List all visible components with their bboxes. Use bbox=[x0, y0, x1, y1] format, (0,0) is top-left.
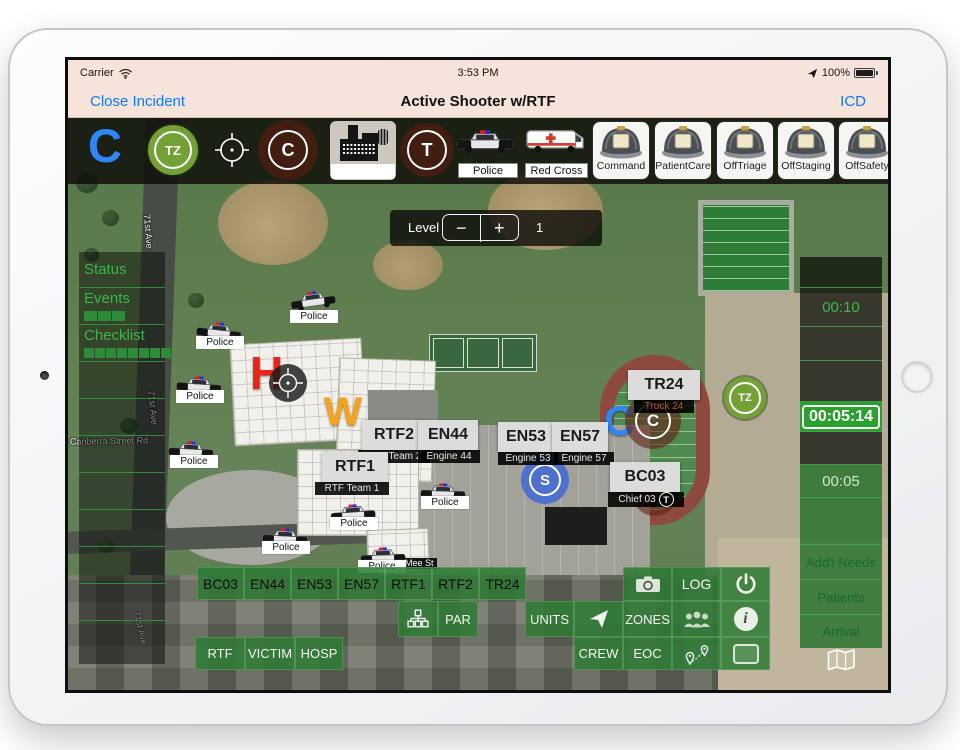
victim-button[interactable]: VICTIM bbox=[245, 637, 295, 670]
unit-marker-tr24[interactable]: TR24 bbox=[628, 370, 700, 400]
level-control: Level − + 1 bbox=[390, 210, 602, 246]
left-panel-row[interactable] bbox=[79, 547, 165, 584]
active-timer-row[interactable]: 00:05:14 bbox=[800, 402, 882, 432]
building-icon bbox=[334, 123, 392, 163]
map-baseball-field bbox=[373, 240, 443, 290]
police-marker-label: Police bbox=[176, 390, 224, 403]
left-panel-row[interactable] bbox=[79, 621, 165, 664]
camera-icon bbox=[635, 575, 661, 593]
command-tool[interactable]: C bbox=[88, 122, 122, 169]
unit-marker-en53[interactable]: EN53 bbox=[498, 422, 554, 452]
checklist-progress bbox=[84, 345, 165, 363]
police-marker-label: Police bbox=[196, 336, 244, 349]
role-button-offstaging[interactable]: OffStaging bbox=[777, 121, 835, 180]
unit-button-bc03[interactable]: BC03 bbox=[197, 567, 244, 600]
page-title: Active Shooter w/RTF bbox=[68, 93, 888, 110]
locate-button[interactable] bbox=[574, 601, 623, 637]
right-panel-row[interactable] bbox=[800, 361, 882, 402]
unit-button-rtf2[interactable]: RTF2 bbox=[432, 567, 479, 600]
unit-marker-en44[interactable]: EN44 bbox=[418, 420, 478, 450]
helmet-icon bbox=[660, 125, 706, 159]
active-timer: 00:05:14 bbox=[802, 405, 880, 429]
eoc-button[interactable]: EOC bbox=[623, 637, 672, 670]
role-button-command[interactable]: Command bbox=[592, 121, 650, 180]
people-icon bbox=[682, 610, 712, 629]
navigation-arrow-icon bbox=[588, 608, 610, 630]
police-marker-label: Police bbox=[290, 310, 338, 323]
org-chart-button[interactable] bbox=[398, 601, 438, 637]
route-pins-button[interactable] bbox=[672, 637, 721, 670]
unit-button-en57[interactable]: EN57 bbox=[338, 567, 385, 600]
folded-map-icon bbox=[826, 648, 856, 672]
icd-button[interactable]: ICD bbox=[840, 93, 866, 110]
unit-button-en44[interactable]: EN44 bbox=[244, 567, 291, 600]
level-label: Level bbox=[408, 220, 439, 235]
events-progress bbox=[84, 308, 165, 326]
screen: Carrier 3:53 PM 100% Close Incident Acti… bbox=[68, 60, 888, 690]
triage-tool[interactable]: T bbox=[400, 123, 454, 177]
left-panel-row[interactable] bbox=[79, 510, 165, 547]
icon-toolbar: C TZ C T bbox=[68, 118, 888, 184]
right-panel-row[interactable] bbox=[800, 327, 882, 361]
par-button[interactable]: PAR bbox=[438, 601, 478, 637]
unit-marker-sub: Engine 57 bbox=[554, 452, 614, 465]
left-panel: Status Events Checklist bbox=[79, 252, 165, 664]
map-book-button[interactable] bbox=[826, 648, 856, 672]
helmet-icon bbox=[722, 125, 768, 159]
unit-button-rtf1[interactable]: RTF1 bbox=[385, 567, 432, 600]
timer-row[interactable]: 00:10 bbox=[800, 288, 882, 327]
map-baseball-field bbox=[218, 180, 328, 265]
timer-small-row[interactable]: 00:05 bbox=[800, 465, 882, 498]
addl-needs-row[interactable]: Add'l Needs bbox=[800, 545, 882, 580]
map-dark-building bbox=[545, 507, 607, 545]
helmet-icon bbox=[783, 125, 829, 159]
checklist-row[interactable]: Checklist bbox=[79, 327, 165, 362]
camera-button[interactable] bbox=[623, 567, 672, 601]
crosshair-tool[interactable] bbox=[212, 130, 252, 170]
police-tool-label: Police bbox=[458, 163, 518, 178]
unit-button-en53[interactable]: EN53 bbox=[291, 567, 338, 600]
role-button-offsafety[interactable]: OffSafety bbox=[838, 121, 888, 180]
events-row[interactable]: Events bbox=[79, 290, 165, 325]
role-button-offtriage[interactable]: OffTriage bbox=[716, 121, 774, 180]
home-button[interactable] bbox=[901, 361, 933, 393]
right-panel-row[interactable] bbox=[800, 432, 882, 465]
org-chart-icon bbox=[407, 609, 429, 629]
patients-row[interactable]: Patients bbox=[800, 580, 882, 615]
unit-marker-sub: Chief 03 T bbox=[608, 492, 684, 507]
left-panel-row[interactable] bbox=[79, 584, 165, 621]
role-button-patientcare[interactable]: PatientCare bbox=[654, 121, 712, 180]
treatment-zone-tool[interactable]: TZ bbox=[148, 125, 198, 175]
left-panel-row[interactable] bbox=[79, 362, 165, 399]
people-button[interactable] bbox=[672, 601, 721, 637]
unit-marker-sub: Truck 24 bbox=[634, 400, 694, 413]
tablet-button[interactable] bbox=[721, 637, 770, 670]
right-panel-row[interactable] bbox=[800, 257, 882, 288]
level-plus-button[interactable]: + bbox=[481, 215, 519, 242]
cold-zone-tool[interactable]: C bbox=[258, 120, 318, 180]
map-tree bbox=[188, 293, 204, 308]
warm-zone-marker[interactable]: W bbox=[324, 392, 362, 432]
police-marker-label: Police bbox=[421, 496, 469, 509]
unit-marker-bc03[interactable]: BC03 bbox=[610, 462, 680, 492]
treatment-zone-marker[interactable]: TZ bbox=[724, 377, 766, 419]
rtf-button[interactable]: RTF bbox=[195, 637, 245, 670]
ipad-bezel: Carrier 3:53 PM 100% Close Incident Acti… bbox=[8, 28, 948, 726]
power-icon bbox=[734, 572, 758, 596]
zones-button[interactable]: ZONES bbox=[623, 601, 672, 637]
map-tennis-courts bbox=[430, 335, 536, 371]
police-marker-label: Police bbox=[262, 541, 310, 554]
power-button[interactable] bbox=[721, 567, 770, 601]
unit-marker-sub: RTF Team 1 bbox=[315, 482, 389, 495]
police-marker-label: Police bbox=[170, 455, 218, 468]
left-panel-row[interactable] bbox=[79, 473, 165, 510]
police-marker-label: Police bbox=[330, 517, 378, 530]
status-row[interactable]: Status bbox=[79, 252, 165, 288]
info-icon: i bbox=[734, 607, 758, 631]
helmet-icon bbox=[598, 125, 644, 159]
front-camera bbox=[40, 371, 49, 380]
right-panel: 00:10 00:05:14 00:05 Add'l Needs Patient… bbox=[800, 257, 882, 648]
triage-mini-badge: T bbox=[659, 492, 674, 507]
hosp-button[interactable]: HOSP bbox=[295, 637, 343, 670]
clock: 3:53 PM bbox=[68, 67, 888, 79]
info-button[interactable]: i bbox=[721, 601, 770, 637]
building-tool[interactable] bbox=[330, 121, 396, 180]
map-tree bbox=[102, 210, 119, 226]
log-button[interactable]: LOG bbox=[672, 567, 721, 601]
police-tool[interactable] bbox=[456, 128, 514, 154]
map-stadium bbox=[698, 200, 794, 296]
map-pins-icon bbox=[683, 643, 711, 665]
helmet-icon bbox=[844, 125, 888, 159]
unit-marker-sub: Engine 53 bbox=[498, 452, 558, 465]
tablet-icon bbox=[733, 644, 759, 664]
right-panel-row[interactable] bbox=[800, 498, 882, 545]
arrival-row[interactable]: Arrival bbox=[800, 615, 882, 648]
left-panel-row[interactable] bbox=[79, 399, 165, 436]
unit-marker-en57[interactable]: EN57 bbox=[552, 422, 608, 452]
nav-bar: Close Incident Active Shooter w/RTF ICD bbox=[68, 86, 888, 118]
level-value: 1 bbox=[536, 220, 543, 235]
unit-button-tr24[interactable]: TR24 bbox=[479, 567, 526, 600]
incident-crosshair-marker[interactable] bbox=[269, 364, 307, 402]
crew-button[interactable]: CREW bbox=[574, 637, 623, 670]
units-button[interactable]: UNITS bbox=[525, 601, 574, 637]
level-minus-button[interactable]: − bbox=[443, 215, 481, 242]
left-panel-row[interactable] bbox=[79, 436, 165, 473]
unit-marker-sub: Engine 44 bbox=[418, 450, 480, 463]
unit-marker-rtf2[interactable]: RTF2 bbox=[362, 420, 426, 450]
redcross-tool[interactable] bbox=[524, 126, 586, 154]
unit-marker-rtf1[interactable]: RTF1 bbox=[322, 452, 388, 482]
redcross-tool-label: Red Cross bbox=[525, 163, 588, 178]
status-bar: Carrier 3:53 PM 100% bbox=[68, 60, 888, 86]
